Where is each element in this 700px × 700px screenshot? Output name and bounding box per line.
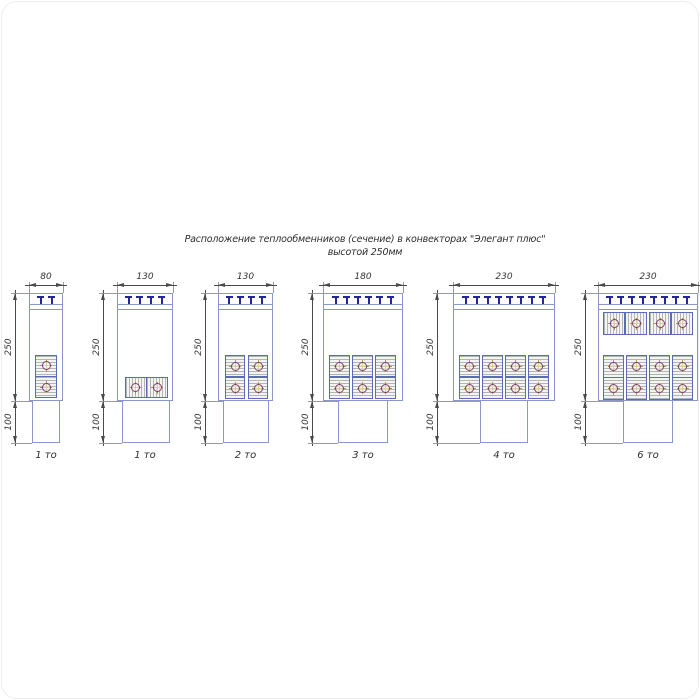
heat-exchanger-divider (626, 377, 647, 378)
width-dimension-label: 230 (628, 272, 668, 282)
tube-circle (678, 362, 687, 371)
height-dim-arrow-bottom (583, 436, 587, 443)
grille-tmark-icon (686, 296, 688, 304)
grille-tmark-icon (609, 296, 611, 304)
grille-tmark-icon (642, 296, 644, 304)
grille-tmark-icon (675, 296, 677, 304)
pedestal-outline (623, 401, 673, 443)
convector-diagrams-group: 802501001 то1302501001 то1302501002 то18… (0, 0, 700, 700)
tube-circle (632, 362, 641, 371)
grille-line-upper (598, 304, 698, 305)
tube-circle (609, 362, 618, 371)
height-ext-line-bottom (581, 443, 623, 444)
tube-circle (655, 362, 664, 371)
heat-exchanger-divider (624, 312, 625, 335)
tube-circle (632, 319, 641, 328)
grille-tmark-icon (631, 296, 633, 304)
height-dim-arrow-top (583, 293, 587, 300)
width-dim-arrow-right (691, 283, 698, 287)
grille-line-lower (598, 309, 698, 310)
grille-tmark-icon (653, 296, 655, 304)
heat-exchanger-divider (670, 312, 671, 335)
height-dimension-label-250: 250 (574, 332, 584, 362)
technical-drawing-canvas: Расположение теплообменников (сечение) в… (0, 0, 700, 700)
height-dim-arrow-mid-upper (583, 394, 587, 401)
tube-circle (678, 319, 687, 328)
heat-exchanger-divider (649, 377, 670, 378)
tube-circle (656, 319, 665, 328)
height-dim-line (585, 290, 586, 446)
grille-tmark-icon (664, 296, 666, 304)
tube-circle (610, 319, 619, 328)
heat-exchanger-divider (603, 377, 624, 378)
exchanger-count-label: 6 то (623, 450, 673, 462)
height-dimension-label-100: 100 (574, 407, 584, 437)
width-dim-line (594, 285, 700, 286)
grille-tmark-icon (620, 296, 622, 304)
heat-exchanger-divider (672, 377, 693, 378)
width-dim-arrow-left (598, 283, 605, 287)
convector-230-6to: 2302501006 то (0, 0, 700, 700)
